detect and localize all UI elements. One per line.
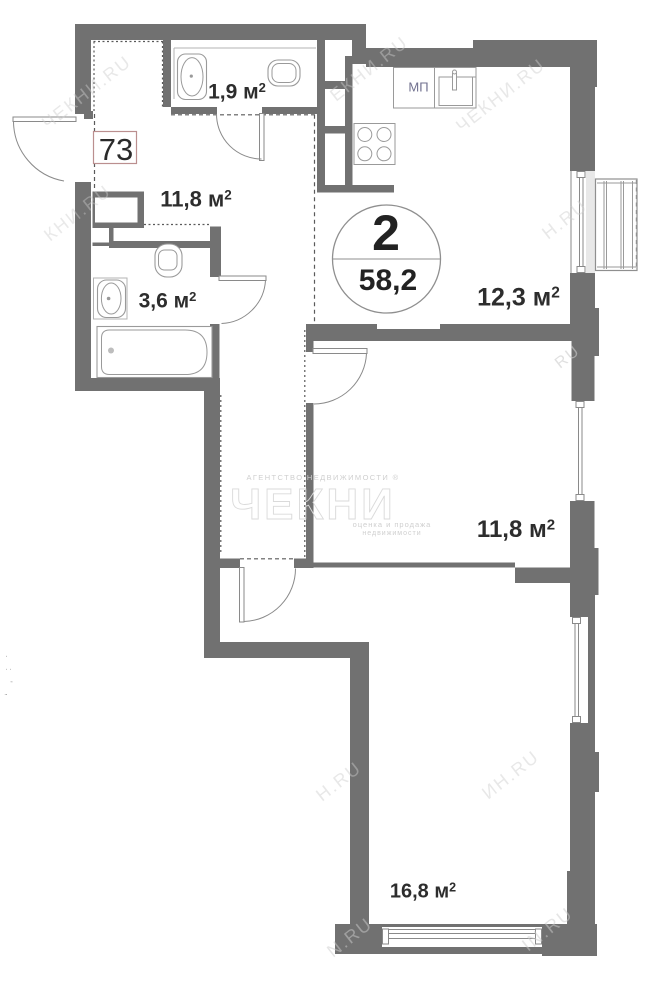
svg-text:16,8 м2: 16,8 м2 [390,881,456,903]
svg-text:11,8 м2: 11,8 м2 [477,516,555,543]
svg-text:73: 73 [99,132,133,167]
svg-text:12,3 м2: 12,3 м2 [477,284,560,312]
svg-text:3,6 м2: 3,6 м2 [139,289,197,313]
svg-text:58,2: 58,2 [359,264,417,297]
svg-text:2: 2 [372,205,400,261]
svg-text:1,9 м2: 1,9 м2 [208,80,266,104]
svg-text:МП: МП [408,80,428,95]
svg-text:недвижимости: недвижимости [362,530,421,537]
svg-text:11,8 м2: 11,8 м2 [160,187,232,212]
svg-text:оценка и продажа: оценка и продажа [353,520,432,529]
svg-text:. : ' ,: . : ' , [4,655,14,700]
